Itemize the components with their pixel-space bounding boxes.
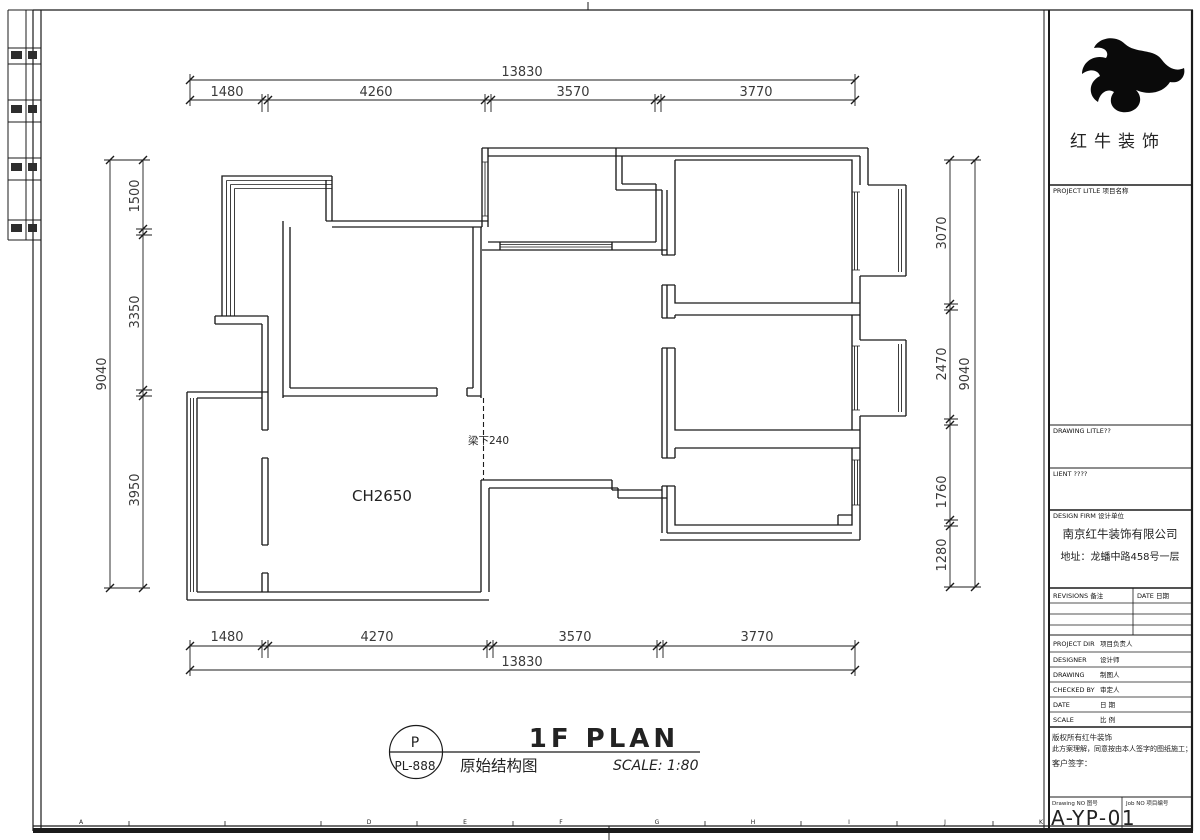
dim-right-total: 9040 <box>958 357 973 390</box>
row-label-cn: 比 例 <box>1100 715 1115 724</box>
dim-bottom-seg: 4270 <box>360 630 393 645</box>
fold-strip <box>8 10 41 240</box>
dim-left-seg: 3350 <box>128 295 143 328</box>
design-firm-address: 地址：龙蟠中路458号一层 <box>1060 550 1179 563</box>
window-glazing-lines <box>191 162 902 592</box>
revisions-date-label: DATE 日期 <box>1137 592 1169 600</box>
copyright-block: 版权所有红牛装饰 此方案理解，同意按由本人签字的图纸施工； 客户签字： <box>1052 732 1192 768</box>
row-label-en: CHECKED BY <box>1053 686 1095 694</box>
grid-letter: E <box>463 819 467 826</box>
plan-title: 1F PLAN <box>529 724 679 754</box>
dim-left-seg: 3950 <box>128 473 143 506</box>
client-label: LIENT ???? <box>1053 470 1087 478</box>
revisions-label: REVISIONS 备注 <box>1053 591 1104 600</box>
grid-letter: A <box>79 819 84 826</box>
dim-right-seg: 2470 <box>935 347 950 380</box>
dim-top-total: 13830 <box>501 65 542 80</box>
grid-letter: D <box>367 819 372 826</box>
grid-letter: F <box>559 819 563 826</box>
drawing-title-group: P PL-888 1F PLAN 原始结构图 SCALE: 1:80 <box>390 724 701 779</box>
row-label-en: PROJECT DIR <box>1053 640 1095 648</box>
row-label-cn: 设计师 <box>1100 655 1120 664</box>
drawing-name: 原始结构图 <box>460 757 538 775</box>
bull-logo-icon <box>1082 38 1184 112</box>
dim-bottom-seg: 3570 <box>558 630 591 645</box>
dim-left-seg: 1500 <box>128 179 143 212</box>
dim-top-seg: 1480 <box>210 85 243 100</box>
floor-plan: CH2650 梁下240 <box>187 148 906 600</box>
grid-letter: G <box>655 819 660 826</box>
dim-right-seg: 1760 <box>935 475 950 508</box>
row-label-en: DATE <box>1053 701 1070 709</box>
dim-left-total: 9040 <box>95 357 110 390</box>
plan-walls <box>187 148 906 600</box>
dim-bottom-total: 13830 <box>501 655 542 670</box>
grid-letter: I <box>848 819 850 826</box>
dim-top-seg: 4260 <box>359 85 392 100</box>
beam-label: 梁下240 <box>468 434 509 447</box>
grid-reference-row: A D E F G H I J K <box>79 819 1044 826</box>
drawing-no-value: A-YP-01 <box>1051 806 1136 830</box>
badge-letter: P <box>411 735 419 751</box>
design-firm-name: 南京红牛装饰有限公司 <box>1063 527 1178 541</box>
company-name: 红牛装饰 <box>1070 132 1166 152</box>
grid-letter: K <box>1039 819 1044 826</box>
dim-right-seg: 1280 <box>935 538 950 571</box>
row-label-en: DESIGNER <box>1053 656 1087 664</box>
drawing-sheet: A D E F G H I J K CH2650 梁下240 13830 148… <box>0 0 1200 840</box>
dim-right-seg: 3070 <box>935 216 950 249</box>
row-label-cn: 审定人 <box>1100 685 1120 694</box>
row-label-en: SCALE <box>1053 716 1074 724</box>
drawing-title-label: DRAWING LITLE?? <box>1053 427 1111 435</box>
ceiling-height-label: CH2650 <box>352 487 412 505</box>
grid-letter: H <box>751 819 756 826</box>
dim-top-seg: 3770 <box>739 85 772 100</box>
dimension-lines <box>104 74 981 676</box>
company-logo: 红牛装饰 <box>1070 38 1184 152</box>
row-label-cn: 日 期 <box>1100 701 1116 709</box>
frame: A D E F G H I J K <box>8 2 1193 840</box>
badge-number: PL-888 <box>395 759 436 773</box>
cad-canvas: A D E F G H I J K CH2650 梁下240 13830 148… <box>0 0 1200 840</box>
dim-bottom-seg: 3770 <box>740 630 773 645</box>
dim-bottom-seg: 1480 <box>210 630 243 645</box>
design-firm-label: DESIGN FIRM 设计单位 <box>1053 511 1124 520</box>
title-block: 红牛装饰 PROJECT LITLE 项目名称 DRAWING LITLE?? … <box>1044 10 1192 831</box>
grid-letter: J <box>943 819 946 826</box>
dim-top-seg: 3570 <box>556 85 589 100</box>
row-label-en: DRAWING <box>1053 671 1085 679</box>
row-label-cn: 制图人 <box>1100 670 1120 679</box>
scale-text: SCALE: 1:80 <box>613 758 699 774</box>
project-title-label: PROJECT LITLE 项目名称 <box>1053 186 1129 195</box>
client-signature-label: 客户签字： <box>1052 758 1092 768</box>
dimension-ticks <box>106 76 979 674</box>
copyright-line-1: 版权所有红牛装饰 <box>1052 732 1112 742</box>
copyright-line-2: 此方案理解，同意按由本人签字的图纸施工； <box>1052 744 1192 753</box>
row-label-cn: 项目负责人 <box>1100 639 1133 648</box>
